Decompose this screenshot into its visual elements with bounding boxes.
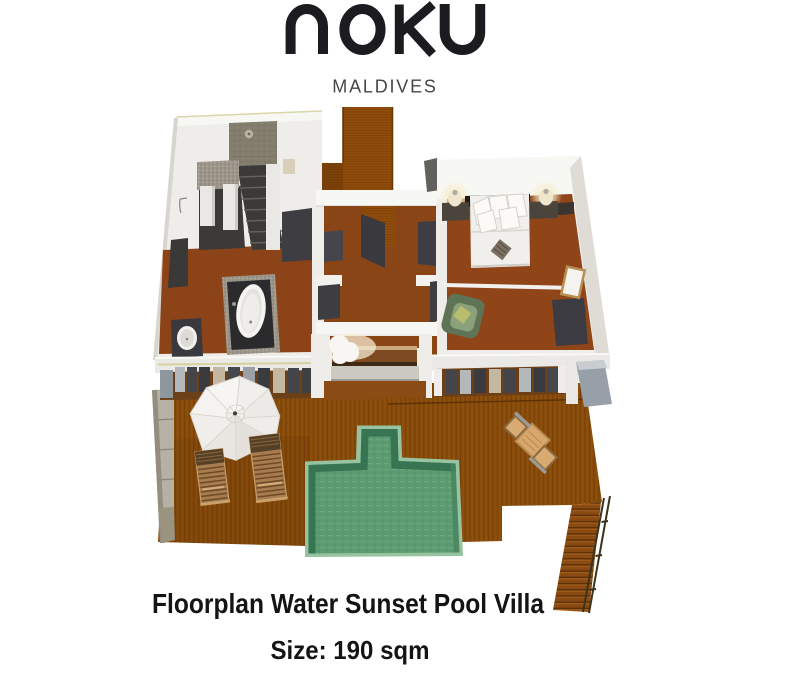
svg-text:MALDIVES: MALDIVES [332,77,437,97]
svg-text:Size: 190 sqm: Size: 190 sqm [271,635,430,665]
svg-text:Floorplan Water Sunset Pool Vi: Floorplan Water Sunset Pool Villa [152,588,544,619]
